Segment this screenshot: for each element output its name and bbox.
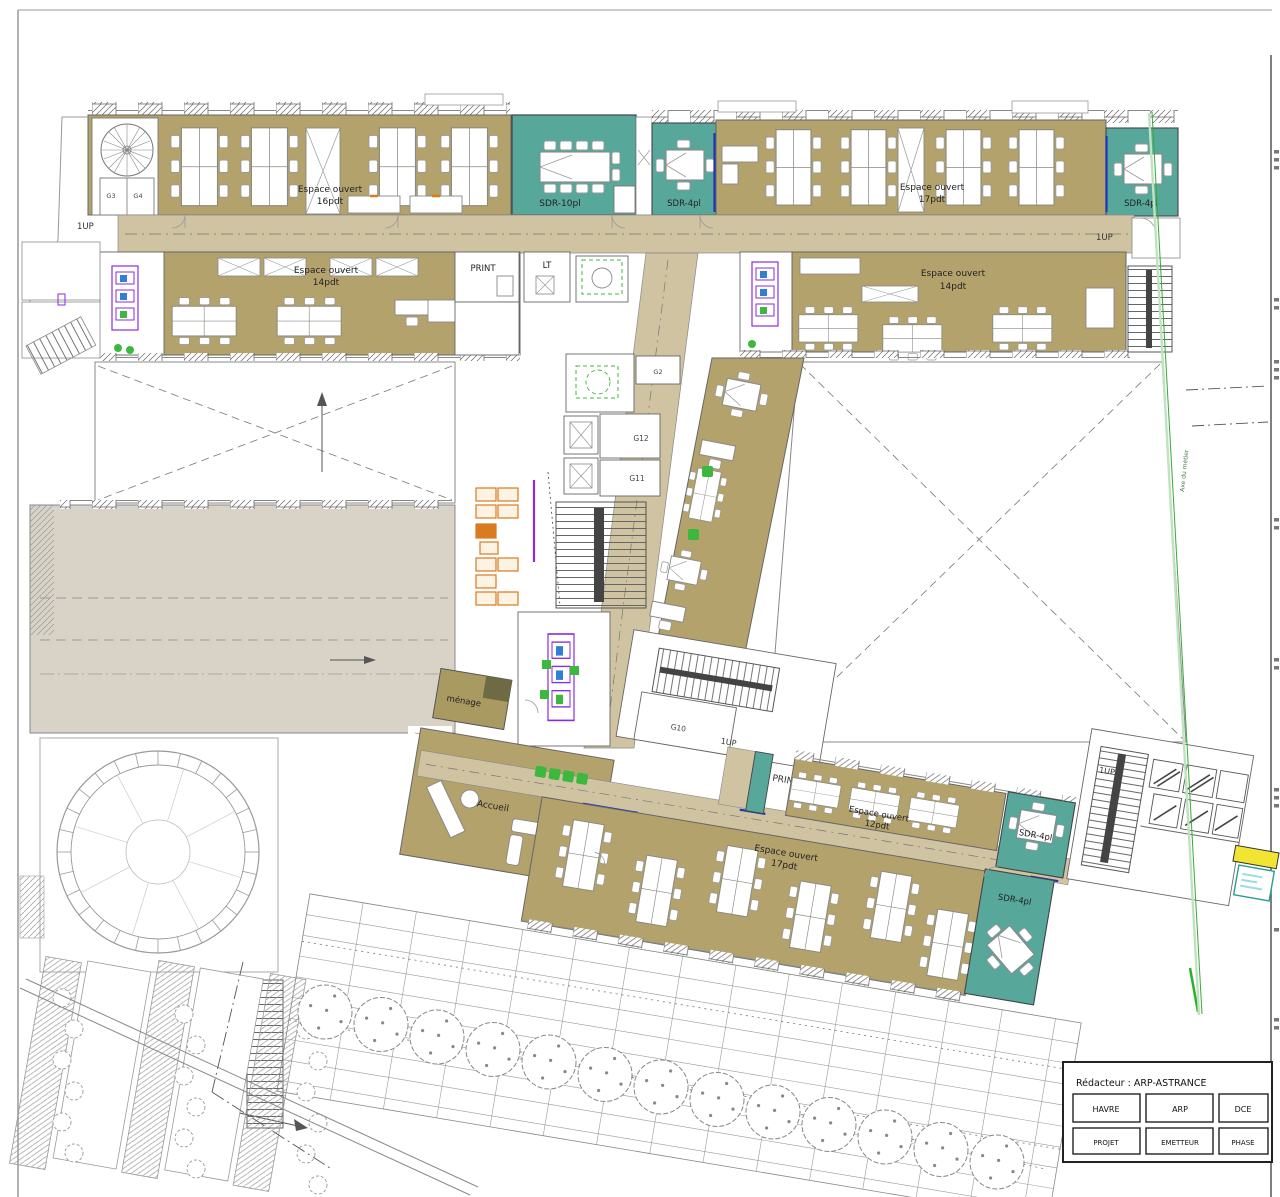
stair-annotation: 1UP bbox=[1096, 233, 1113, 243]
edge-text-fragment bbox=[1274, 526, 1279, 530]
tree bbox=[970, 1135, 1024, 1189]
edge-text-fragment bbox=[1274, 306, 1279, 310]
room-capacity: 14pdt bbox=[313, 278, 340, 288]
tree-dot bbox=[381, 1021, 384, 1024]
tree-dot bbox=[773, 1109, 776, 1112]
tree-dot bbox=[781, 1094, 784, 1097]
tree bbox=[298, 985, 352, 1039]
desk-cluster bbox=[841, 130, 896, 205]
desk-cluster bbox=[766, 130, 821, 205]
printer bbox=[497, 276, 513, 296]
edge-text-fragment bbox=[1274, 666, 1279, 670]
room-g12 bbox=[600, 414, 660, 458]
room-label: G4 bbox=[133, 192, 142, 200]
desk bbox=[428, 300, 458, 322]
grid-axis-line bbox=[1186, 386, 1268, 390]
axis-label: Axe du métier bbox=[1179, 449, 1190, 492]
desk-cluster bbox=[441, 128, 498, 206]
tree bbox=[802, 1098, 856, 1152]
tree bbox=[634, 1060, 688, 1114]
plant bbox=[534, 765, 547, 778]
tree-dot bbox=[1011, 1170, 1014, 1173]
shrub bbox=[297, 1083, 315, 1101]
plant bbox=[542, 660, 551, 669]
tree-dot bbox=[955, 1158, 958, 1161]
title-block: Rédacteur : ARP-ASTRANCE HAVRE ARP DCE P… bbox=[1063, 1062, 1272, 1162]
window-wall bbox=[60, 500, 452, 509]
tree-dot bbox=[477, 1042, 480, 1045]
tree-dot bbox=[757, 1104, 760, 1107]
tree bbox=[466, 1023, 520, 1077]
desk-cluster bbox=[936, 130, 991, 205]
tree-dot bbox=[765, 1126, 768, 1129]
tree-dot bbox=[1005, 1144, 1008, 1147]
tree bbox=[522, 1035, 576, 1089]
edge-text-fragment bbox=[1274, 376, 1279, 380]
title-cell: HAVRE bbox=[1092, 1105, 1119, 1114]
tree-dot bbox=[395, 1033, 398, 1036]
shrub bbox=[187, 1160, 205, 1178]
tree-dot bbox=[501, 1032, 504, 1035]
sanitary-room bbox=[566, 354, 634, 412]
tree-dot bbox=[813, 1117, 816, 1120]
cabinet bbox=[348, 196, 400, 213]
lower-left-hall bbox=[30, 500, 455, 745]
room-label: Espace ouvert bbox=[900, 183, 965, 193]
desk bbox=[722, 146, 758, 162]
spiral-stair bbox=[101, 124, 153, 176]
tree bbox=[578, 1048, 632, 1102]
plant bbox=[748, 340, 756, 348]
arrowhead-icon bbox=[294, 1119, 308, 1131]
cabinet bbox=[800, 258, 860, 274]
north-west-wing: G3 G4 Espace ouvert 16pdt 1UP bbox=[77, 94, 511, 232]
edge-text-fragment bbox=[1274, 166, 1279, 170]
tree-dot bbox=[837, 1107, 840, 1110]
desk-cluster bbox=[799, 307, 858, 350]
tree-dot bbox=[597, 1089, 600, 1092]
edge-text-fragments bbox=[1274, 150, 1279, 1030]
tree-dot bbox=[981, 1154, 984, 1157]
tree-dot bbox=[661, 1084, 664, 1087]
room bbox=[455, 302, 519, 355]
room-capacity: 17pdt bbox=[919, 195, 946, 205]
toilet-fixtures bbox=[112, 266, 138, 330]
plant bbox=[126, 346, 134, 354]
room-label: G3 bbox=[106, 192, 115, 200]
tree-dot bbox=[949, 1132, 952, 1135]
tree-dot bbox=[645, 1079, 648, 1082]
lt-room-top: LT bbox=[524, 252, 570, 302]
tree-dot bbox=[725, 1082, 728, 1085]
west-wing-band2: Espace ouvert 14pdt PRINT bbox=[100, 252, 520, 361]
tree-dot bbox=[933, 1164, 936, 1167]
tree-dot bbox=[317, 1026, 320, 1029]
shrub bbox=[187, 1098, 205, 1116]
plant bbox=[548, 768, 561, 781]
shrub bbox=[53, 1113, 71, 1131]
room-label: G12 bbox=[633, 434, 649, 443]
title-cell: EMETTEUR bbox=[1161, 1139, 1199, 1147]
desk bbox=[1086, 288, 1114, 328]
tree-dot bbox=[843, 1133, 846, 1136]
tree bbox=[858, 1110, 912, 1164]
edge-text-fragment bbox=[1274, 1026, 1279, 1030]
tree-dot bbox=[429, 1051, 432, 1054]
tree-dot bbox=[493, 1046, 496, 1049]
upper-left-hall bbox=[95, 362, 455, 503]
meeting-room-sdr4-top-right: SDR-4pl bbox=[1106, 128, 1178, 216]
room-capacity: 16pdt bbox=[317, 197, 344, 207]
tree-dot bbox=[389, 1007, 392, 1010]
tree-dot bbox=[941, 1146, 944, 1149]
room-label: Espace ouvert bbox=[294, 266, 359, 276]
room-label: G11 bbox=[629, 474, 645, 483]
tree-dot bbox=[605, 1071, 608, 1074]
edge-text-fragment bbox=[1274, 360, 1279, 364]
tree-dot bbox=[533, 1054, 536, 1057]
room-label: LT bbox=[543, 261, 553, 271]
tree-dot bbox=[787, 1120, 790, 1123]
edge-text-fragment bbox=[1274, 1018, 1279, 1022]
meeting-room-sdr4-mid: SDR-4pl bbox=[996, 792, 1076, 878]
grid-axis-line bbox=[1192, 422, 1268, 426]
tree-dot bbox=[365, 1017, 368, 1020]
tree-dot bbox=[675, 1095, 678, 1098]
shrub bbox=[65, 1082, 83, 1100]
tree-dot bbox=[485, 1064, 488, 1067]
floor-plan-sheet: G3 G4 Espace ouvert 16pdt 1UP SDR-10pl S… bbox=[0, 0, 1280, 1197]
tree-dot bbox=[557, 1044, 560, 1047]
edge-text-fragment bbox=[1274, 158, 1279, 162]
title-cell: DCE bbox=[1235, 1105, 1252, 1114]
room-label: Espace ouvert bbox=[921, 269, 986, 279]
desk-cluster bbox=[993, 307, 1052, 350]
tree-dot bbox=[709, 1114, 712, 1117]
tree-dot bbox=[437, 1034, 440, 1037]
desk-cluster bbox=[172, 298, 236, 345]
desk-cluster bbox=[369, 128, 426, 206]
room-label: SDR-4pl bbox=[667, 199, 701, 209]
utility-box bbox=[1234, 865, 1275, 901]
room-capacity: 14pdt bbox=[940, 282, 967, 292]
tree-dot bbox=[445, 1019, 448, 1022]
tree bbox=[690, 1073, 744, 1127]
tree-dot bbox=[899, 1145, 902, 1148]
tree-dot bbox=[829, 1121, 832, 1124]
title-cell: PHASE bbox=[1231, 1139, 1254, 1147]
plant bbox=[702, 466, 713, 477]
tree-dot bbox=[619, 1083, 622, 1086]
tree-row bbox=[298, 985, 1043, 1189]
tree-dot bbox=[653, 1101, 656, 1104]
shrub bbox=[53, 1051, 71, 1069]
edge-text-fragment bbox=[1274, 788, 1279, 792]
desk-cluster bbox=[171, 128, 228, 206]
shrub bbox=[309, 1052, 327, 1070]
tree-dot bbox=[589, 1067, 592, 1070]
plant bbox=[576, 772, 589, 785]
title-cell: PROJET bbox=[1093, 1139, 1119, 1147]
redacteur-text: Rédacteur : ARP-ASTRANCE bbox=[1076, 1078, 1206, 1089]
toilet-fixtures bbox=[548, 634, 574, 720]
plant bbox=[688, 529, 699, 540]
south-east-stair-block: 1UP bbox=[1067, 729, 1254, 906]
tree-dot bbox=[717, 1096, 720, 1099]
closet bbox=[614, 186, 635, 213]
tree-dot bbox=[309, 1004, 312, 1007]
sanitary-top bbox=[576, 256, 628, 302]
room-label: PRINT bbox=[470, 264, 496, 274]
cabinet bbox=[410, 196, 462, 213]
tree-dot bbox=[549, 1059, 552, 1062]
floor-plan-drawing: G3 G4 Espace ouvert 16pdt 1UP SDR-10pl S… bbox=[0, 0, 1280, 1197]
tree-dot bbox=[333, 994, 336, 997]
tree-dot bbox=[563, 1070, 566, 1073]
window-wall bbox=[740, 350, 1130, 358]
tree-dot bbox=[613, 1057, 616, 1060]
room-label: Espace ouvert bbox=[298, 185, 363, 195]
shrub bbox=[65, 1144, 83, 1162]
tree-dot bbox=[325, 1009, 328, 1012]
desk bbox=[722, 164, 738, 184]
tree bbox=[410, 1010, 464, 1064]
desk-cluster bbox=[1009, 130, 1064, 205]
shrub bbox=[309, 1176, 327, 1194]
shrub bbox=[175, 1129, 193, 1147]
edge-text-fragment bbox=[1274, 804, 1279, 808]
plant bbox=[114, 344, 122, 352]
tree bbox=[746, 1085, 800, 1139]
shrub bbox=[297, 1145, 315, 1163]
grid-line bbox=[1023, 1019, 1056, 1197]
desk-cluster bbox=[241, 128, 298, 206]
tree-dot bbox=[869, 1129, 872, 1132]
tree-dot bbox=[877, 1151, 880, 1154]
edge-text-fragment bbox=[1274, 150, 1279, 154]
locker-bench-orange bbox=[476, 488, 518, 605]
tree-dot bbox=[451, 1045, 454, 1048]
stair-annotation: 1UP bbox=[77, 222, 94, 232]
edge-text-fragment bbox=[1274, 796, 1279, 800]
tree-dot bbox=[421, 1029, 424, 1032]
shrub bbox=[187, 1036, 205, 1054]
shrub bbox=[175, 1005, 193, 1023]
plant bbox=[570, 666, 579, 675]
plant bbox=[562, 770, 575, 783]
tree-dot bbox=[373, 1039, 376, 1042]
toilet-fixtures bbox=[752, 262, 778, 326]
tree-dot bbox=[669, 1069, 672, 1072]
edge-text-fragment bbox=[1274, 518, 1279, 522]
edge-text-fragment bbox=[1274, 928, 1279, 932]
tree-dot bbox=[885, 1134, 888, 1137]
tree-dot bbox=[507, 1058, 510, 1061]
meeting-room-sdr4-top-left: SDR-4pl bbox=[652, 123, 716, 215]
desk-cluster bbox=[277, 298, 341, 345]
tree-dot bbox=[925, 1142, 928, 1145]
tree-dot bbox=[893, 1119, 896, 1122]
menage-closet bbox=[483, 676, 512, 702]
shrub bbox=[65, 1020, 83, 1038]
meeting-room-sdr10: SDR-10pl bbox=[512, 115, 636, 217]
edge-text-fragment bbox=[1274, 298, 1279, 302]
edge-text-fragment bbox=[1274, 658, 1279, 662]
tree-dot bbox=[731, 1108, 734, 1111]
tree-dot bbox=[997, 1159, 1000, 1162]
room-label: G2 bbox=[653, 368, 662, 376]
tree-dot bbox=[821, 1139, 824, 1142]
plant bbox=[540, 690, 549, 699]
tree bbox=[914, 1123, 968, 1177]
tree-dot bbox=[339, 1020, 342, 1023]
north-east-wing: SDR-4pl Espace ouvert 17pdt SDR-4pl bbox=[652, 101, 1178, 216]
shrub bbox=[175, 1067, 193, 1085]
title-cell: ARP bbox=[1172, 1105, 1188, 1114]
tree bbox=[354, 998, 408, 1052]
tree-dot bbox=[989, 1176, 992, 1179]
shaft bbox=[636, 117, 652, 215]
rotunda-plaza bbox=[40, 738, 278, 972]
edge-text-fragment bbox=[1274, 368, 1279, 372]
tree-dot bbox=[701, 1092, 704, 1095]
tree-dot bbox=[541, 1076, 544, 1079]
room-label: SDR-10pl bbox=[539, 199, 580, 209]
